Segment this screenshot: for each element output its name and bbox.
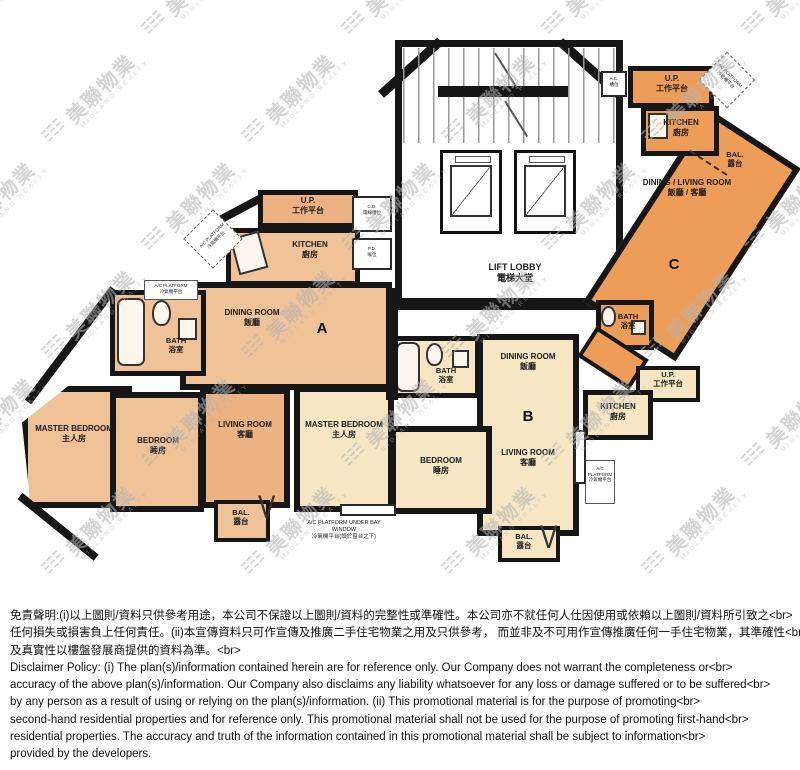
disclaimer-en-line: provided by the developers. [10,746,794,763]
room-label-balcony-b: BAL. 露台 [504,532,544,551]
stair-landing-wall [438,86,568,97]
disclaimer-en-line: second-hand residential properties and f… [10,712,794,729]
room-label-bath-a: BATH 浴室 [152,336,200,355]
room-label-dining-a: DINING ROOM 飯廳 [216,308,288,328]
label-cable-duct-a: C.D. 電線槽位 [352,204,392,215]
room-label-kitchen-c: KITCHEN 廚房 [648,118,714,138]
room-label-dining-living-c: DINING / LIVING ROOM 飯廳 / 客廳 [626,178,748,198]
disclaimer-en-line: Disclaimer Policy: (i) The plan(s)/infor… [10,660,794,677]
unit-letter-b: B [516,408,540,427]
disclaimer-zh-line: 及真實性以樓盤發展商提供的資料為準。<br> [10,643,794,660]
disclaimer-zh-line: 免責聲明:(i)以上圖則/資料只供參考用途，本公司不保證以上圖則/資料的完整性或… [10,608,794,625]
room-label-bath-c: BATH 浴室 [606,312,650,331]
room-living-a [200,388,290,508]
lift-shaft-1 [440,150,502,234]
wall-core-left [386,288,398,400]
room-label-balcony-c: BAL. 露台 [712,150,758,169]
room-label-bath-b: BATH 浴室 [424,366,468,385]
bathtub-icon [117,298,145,366]
room-label-bedroom-b: BEDROOM 睡房 [406,456,476,476]
floor-plan: LIFT LOBBY 電梯大堂 A.C. 槽位 AC PLATFORM 冷氣機平… [0,0,800,605]
lift-shaft-2 [514,150,576,234]
disclaimer-zh-line: 任何損失或損害負上任何責任。(ii)本宣傳資料只可作宣傳及推廣二手住宅物業之用及… [10,625,794,642]
room-label-bedroom-a: BEDROOM 睡房 [124,436,192,456]
room-dining-a [180,282,392,390]
toilet-icon [426,343,443,366]
disclaimer-en-line: by any person as a result of using or re… [10,694,794,711]
room-label-master-bedroom-a: MASTER BEDROOM 主人房 [34,424,114,444]
label-ac-platform-b: A/C PLATFORM 冷氣機平台 [585,466,615,483]
room-label-up-b: U.P. 工作平台 [640,370,696,389]
lift-car-icon [450,165,492,217]
room-label-living-b: LIVING ROOM 客廳 [490,448,566,468]
lift-car-icon [524,165,566,217]
room-label-living-a: LIVING ROOM 客廳 [208,420,282,440]
room-master-bedroom-b [294,386,394,512]
room-label-kitchen-b: KITCHEN 廚房 [588,402,648,422]
room-label-up-c: U.P. 工作平台 [634,74,710,94]
label-ac-platform-under-bay-window: A/C PLATFORM UNDER BAY WINDOW 冷氣機平台(設於窗台… [298,520,390,541]
unit-letter-c: C [662,256,686,275]
room-label-lift-lobby: LIFT LOBBY 電梯大堂 [440,262,590,285]
disclaimer-en-line: accuracy of the above plan(s)/informatio… [10,677,794,694]
disclaimer-en-line: residential properties. The accuracy and… [10,729,794,746]
label-ac-platform-bath-a: A/C PLATFORM 冷氣機平台 [144,283,198,294]
room-label-kitchen-a: KITCHEN 廚房 [274,240,346,260]
room-label-dining-b: DINING ROOM 飯廳 [488,352,568,372]
lift-vent [455,156,491,163]
unit-letter-a: A [310,320,334,339]
toilet-icon [152,300,171,326]
label-pipe-duct-a: P.D. 喉位 [352,246,392,257]
disclaimer-text: 免責聲明:(i)以上圖則/資料只供參考用途，本公司不保證以上圖則/資料的完整性或… [10,608,794,763]
room-label-up-a: U.P. 工作平台 [268,196,348,216]
lift-vent [529,156,565,163]
bathtub-icon [396,342,420,392]
room-label-master-bedroom-b: MASTER BEDROOM 主人房 [302,420,386,440]
room-label-balcony-a: BAL. 露台 [220,508,262,527]
label-ac-duct-c: A.C. 槽位 [601,76,627,87]
bay-window-b [340,504,396,516]
